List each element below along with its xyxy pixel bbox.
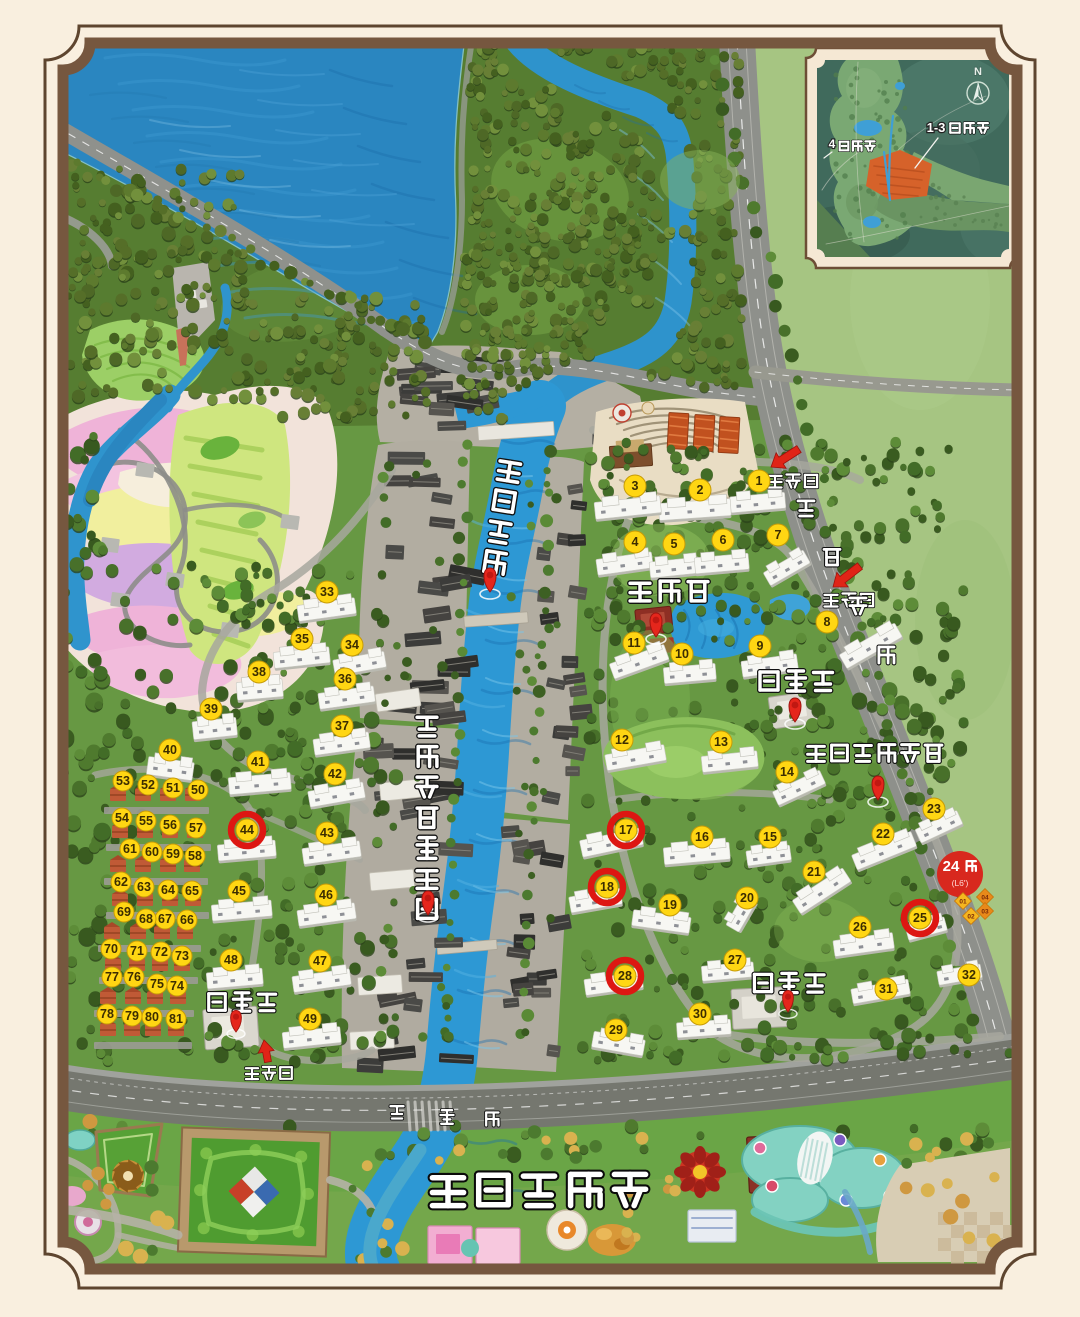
- svg-text:3: 3: [632, 479, 639, 493]
- svg-text:13: 13: [714, 735, 728, 749]
- svg-text:23: 23: [927, 802, 941, 816]
- svg-text:16: 16: [695, 830, 709, 844]
- svg-text:14: 14: [780, 765, 794, 779]
- svg-text:15: 15: [763, 830, 777, 844]
- svg-text:28: 28: [618, 969, 632, 983]
- svg-text:7: 7: [775, 528, 782, 542]
- svg-text:26: 26: [853, 920, 867, 934]
- svg-text:27: 27: [728, 953, 742, 967]
- svg-text:N: N: [974, 66, 982, 78]
- svg-text:6: 6: [720, 533, 727, 547]
- svg-text:5: 5: [671, 537, 678, 551]
- svg-text:1: 1: [756, 474, 763, 488]
- svg-text:30: 30: [693, 1007, 707, 1021]
- svg-text:10: 10: [675, 647, 689, 661]
- svg-text:11: 11: [627, 636, 640, 650]
- svg-text:21: 21: [807, 865, 821, 879]
- svg-text:19: 19: [663, 898, 677, 912]
- svg-text:29: 29: [609, 1023, 623, 1037]
- svg-text:2: 2: [697, 483, 704, 497]
- svg-text:22: 22: [876, 827, 890, 841]
- svg-text:9: 9: [757, 639, 764, 653]
- svg-text:20: 20: [740, 891, 754, 905]
- svg-text:12: 12: [615, 733, 629, 747]
- svg-text:4: 4: [632, 535, 639, 549]
- svg-text:31: 31: [879, 982, 893, 996]
- svg-text:8: 8: [824, 615, 831, 629]
- svg-text:1-3: 1-3: [927, 120, 946, 135]
- svg-text:17: 17: [619, 823, 633, 837]
- svg-text:18: 18: [600, 880, 614, 894]
- svg-text:25: 25: [913, 911, 927, 925]
- svg-text:4: 4: [829, 137, 836, 151]
